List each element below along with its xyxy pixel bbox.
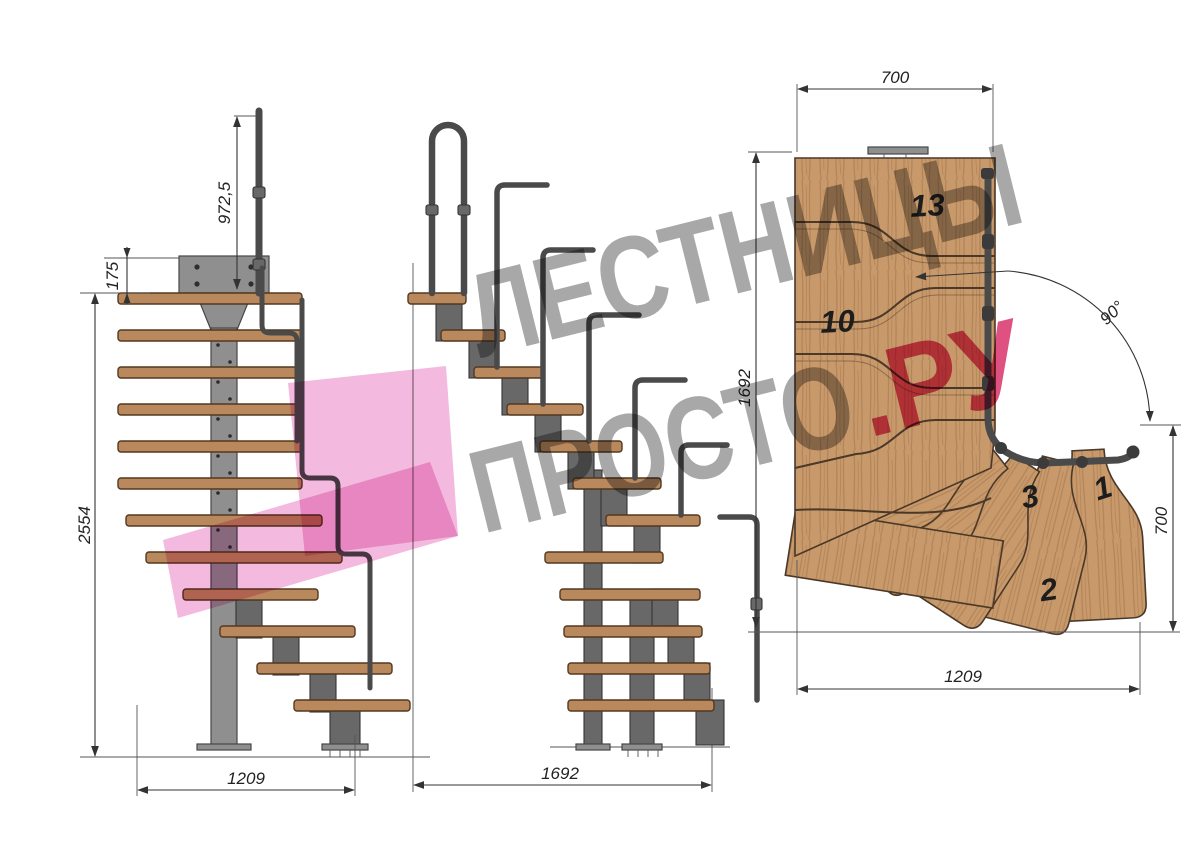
dim-top-width: 700 [881,68,910,87]
step-modules [236,600,368,757]
dim-run: 1209 [227,769,265,788]
anchor-bolts [628,750,658,757]
anchor-bolts [330,750,360,757]
front-view-dimensions: 1692 [414,764,711,785]
dim-total-height: 2554 [75,506,94,545]
staircase-technical-drawing: 972,5 175 2554 1209 [0,0,1200,849]
dim-right-depth: 700 [1152,506,1171,535]
dim-angle: 90° [1096,297,1128,329]
column-foot [197,744,251,750]
dim-handrail-height: 972,5 [215,181,234,224]
dim-bottom-width: 1209 [944,667,982,686]
drawing-canvas: 972,5 175 2554 1209 [0,0,1200,849]
dim-run: 1692 [541,764,579,783]
dim-plate-offset: 175 [103,261,122,290]
